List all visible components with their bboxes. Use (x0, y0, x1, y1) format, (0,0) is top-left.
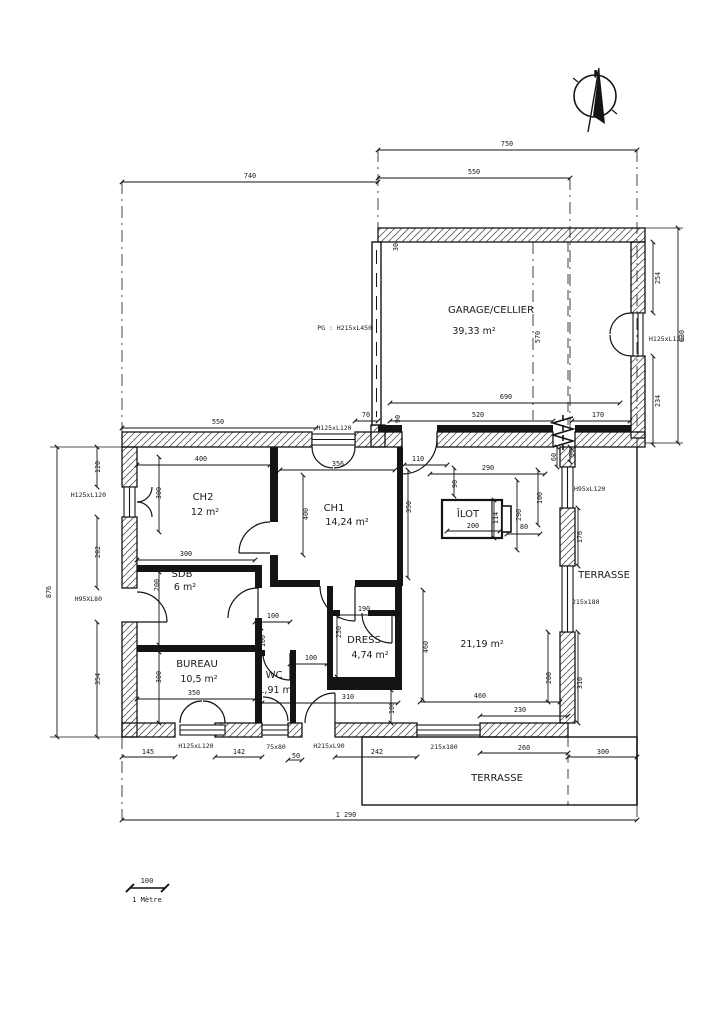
dim-label: 354 (94, 673, 102, 685)
room-area: 12 m² (191, 507, 219, 518)
dim-label: 100 (305, 654, 317, 662)
opening-label: H125xL120 (316, 424, 351, 432)
dim-label: 50 (292, 752, 300, 760)
dim-label: 300 (155, 671, 163, 683)
scale-bar: 100 1 Mètre (130, 877, 165, 904)
dim-label: 356 (332, 460, 344, 468)
room-name: WC (266, 670, 283, 681)
dim-label: 310 (576, 677, 584, 689)
zone-label: TERRASSE (577, 570, 630, 581)
dim-label: 290 (515, 509, 523, 521)
dim-label: 550 (212, 418, 224, 426)
room-name: CH1 (324, 503, 345, 514)
dim-label: 520 (472, 411, 484, 419)
dim-label: 300 (155, 487, 163, 499)
opening-label: PG : H215xL450 (317, 324, 372, 332)
opening-label: H95xL120 (574, 485, 605, 493)
zone-label: TERRASSE (470, 773, 523, 784)
room-name: GARAGE/CELLIER (448, 305, 534, 316)
dim-label: 100 (259, 635, 267, 647)
room-name: DRESS (347, 635, 381, 646)
dim-label: 300 (180, 550, 192, 558)
opening-label: H95XL80 (75, 595, 102, 603)
room-area: 14,24 m² (325, 517, 368, 528)
scale-length-label: 100 (141, 877, 154, 885)
dim-label: 176 (576, 531, 584, 543)
dim-label: 280 (545, 672, 553, 684)
dim-label: 110 (412, 455, 424, 463)
room-area: 4,74 m² (351, 650, 388, 661)
room-area: 21,19 m² (460, 639, 503, 650)
dim-label: 70 (362, 411, 370, 419)
dim-label: 876 (45, 586, 53, 598)
dim-label: 90 (451, 480, 459, 488)
dim-label: 90 (568, 449, 576, 457)
floor-plan-drawing: N 100 1 Mètre GARAGE/CELLIER39,33 m²CH21… (0, 0, 724, 1024)
opening-label: H125xL120 (71, 491, 106, 499)
dim-label: 60 (550, 453, 558, 461)
dim-label: 145 (142, 748, 154, 756)
dim-label: 254 (654, 272, 662, 284)
garage-door-pg (372, 242, 381, 425)
dim-label: 300 (597, 748, 609, 756)
compass-north-label: N (594, 70, 599, 80)
dim-label: 200 (153, 579, 161, 591)
room-area: 39,33 m² (452, 326, 495, 337)
scale-unit-label: 1 Mètre (132, 896, 162, 904)
dim-label: 100 (536, 492, 544, 504)
dim-label: 350 (188, 689, 200, 697)
dim-label: 290 (482, 464, 494, 472)
room-area: 1,91 m² (258, 685, 295, 696)
dim-label: 630 (678, 330, 686, 342)
north-arrow-icon: N (573, 68, 617, 132)
dim-label: 350 (405, 501, 413, 513)
dim-label: 400 (195, 455, 207, 463)
dim-label: 100 (267, 612, 279, 620)
dim-label: 202 (94, 546, 102, 558)
dim-label: 30 (392, 243, 400, 251)
room-name: SDB (172, 569, 193, 580)
dim-label: 200 (467, 522, 479, 530)
room-name: CH2 (193, 492, 214, 503)
dim-label: 550 (468, 168, 480, 176)
dim-label: 250 (335, 626, 343, 638)
dim-label: 120 (94, 461, 102, 473)
dim-label: 750 (501, 140, 513, 148)
dim-label: 242 (371, 748, 383, 756)
dim-label: 1 290 (336, 811, 356, 819)
opening-label: 75x80 (266, 743, 286, 751)
dim-label: 230 (514, 706, 526, 714)
dim-label: 400 (302, 508, 310, 520)
dim-label: 690 (500, 393, 512, 401)
dim-label: 190 (358, 605, 370, 613)
room-area: 10,5 m² (180, 674, 217, 685)
dim-label: 100 (388, 702, 396, 714)
opening-label: 215x180 (572, 598, 599, 606)
floor-plan-page: N 100 1 Mètre GARAGE/CELLIER39,33 m²CH21… (0, 0, 724, 1024)
dim-label: 234 (654, 395, 662, 407)
opening-label: H125xL120 (178, 742, 213, 750)
dim-label: 460 (422, 641, 430, 653)
zone-label: ÎLOT (456, 507, 480, 520)
dim-label: 114 (492, 512, 500, 524)
room-name: BUREAU (176, 659, 218, 670)
dim-label: 170 (592, 411, 604, 419)
dim-label: 460 (474, 692, 486, 700)
dim-label: 260 (518, 744, 530, 752)
opening-label: H215xL90 (313, 742, 344, 750)
room-area: 6 m² (174, 582, 196, 593)
dim-label: 740 (244, 172, 256, 180)
dim-label: 310 (342, 693, 354, 701)
opening-label: 215x180 (430, 743, 457, 751)
dim-label: 570 (534, 331, 542, 343)
dim-label: 142 (233, 748, 245, 756)
dim-label: 90 (394, 415, 402, 423)
dim-label: 80 (520, 523, 528, 531)
